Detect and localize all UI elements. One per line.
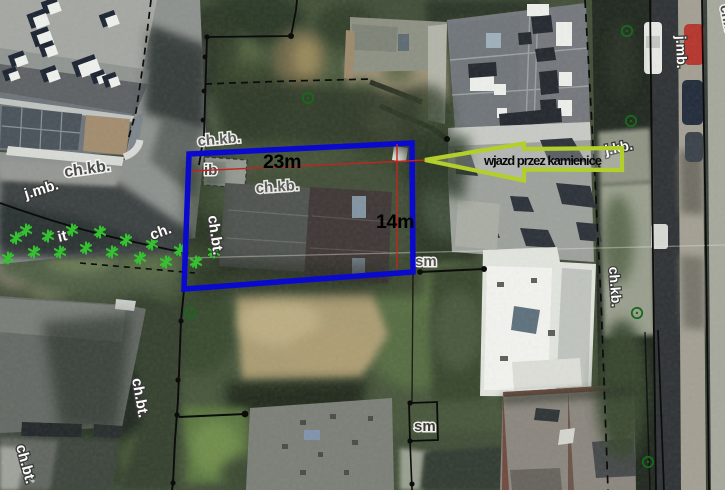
svg-text:j.mb.: j.mb. xyxy=(673,35,690,69)
svg-text:23m: 23m xyxy=(263,151,301,173)
svg-text:14m: 14m xyxy=(376,211,414,233)
svg-text:sm: sm xyxy=(414,418,436,435)
svg-text:ch.kb.: ch.kb. xyxy=(255,177,299,197)
svg-text:sm: sm xyxy=(415,253,437,270)
svg-text:wjazd przez kamienicę: wjazd przez kamienicę xyxy=(483,153,602,168)
svg-text:ch.kb.: ch.kb. xyxy=(606,266,625,307)
